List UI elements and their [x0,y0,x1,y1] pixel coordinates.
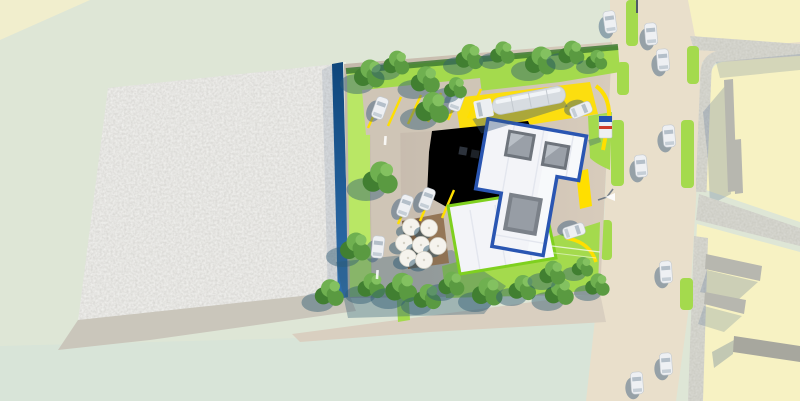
gravel-field [78,64,348,321]
aerial-site-render: Aerial 3D architectural site render [0,0,800,401]
totem-red-band [599,126,612,129]
equipment-box-1 [458,146,467,155]
skylight-2 [541,141,571,170]
skylight-1 [504,129,536,160]
totem-blue-band [599,116,612,122]
truck-cab [473,98,494,119]
atrium-opening [503,193,543,236]
equipment-box-2 [470,149,479,158]
